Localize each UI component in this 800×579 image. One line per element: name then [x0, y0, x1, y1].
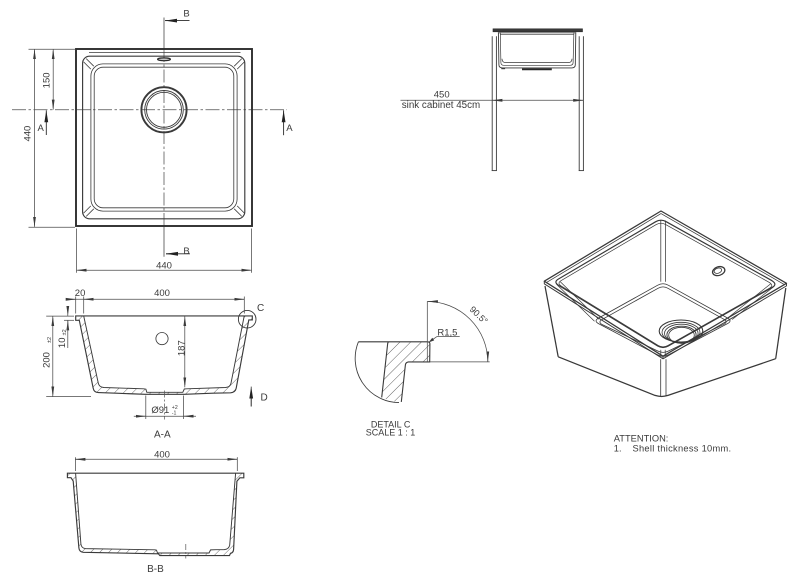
svg-text:10: 10	[57, 338, 68, 349]
svg-text:1.: 1.	[614, 444, 622, 454]
svg-text:B: B	[183, 9, 189, 20]
svg-text:200: 200	[41, 352, 52, 368]
svg-text:±2: ±2	[47, 337, 53, 343]
svg-text:A: A	[286, 123, 293, 134]
svg-text:D: D	[261, 392, 268, 403]
svg-text:R1,5: R1,5	[437, 327, 457, 338]
svg-text:440: 440	[156, 260, 172, 271]
svg-text:Shell thickness 10mm.: Shell thickness 10mm.	[633, 444, 732, 454]
svg-text:20: 20	[75, 288, 86, 299]
svg-text:Ø91: Ø91	[151, 405, 169, 416]
svg-text:400: 400	[154, 288, 170, 299]
svg-text:150: 150	[42, 72, 53, 88]
svg-text:440: 440	[23, 126, 34, 142]
svg-text:SCALE 1 : 1: SCALE 1 : 1	[366, 427, 416, 437]
svg-text:450: 450	[434, 89, 450, 100]
svg-text:400: 400	[154, 449, 170, 460]
svg-text:±2: ±2	[62, 329, 68, 335]
svg-text:C: C	[257, 303, 264, 314]
svg-text:B-B: B-B	[147, 564, 164, 575]
svg-text:sink cabinet 45cm: sink cabinet 45cm	[402, 100, 480, 111]
svg-text:ATTENTION:: ATTENTION:	[614, 434, 669, 444]
svg-text:A-A: A-A	[154, 429, 171, 440]
svg-text:A: A	[38, 123, 45, 134]
svg-text:187: 187	[176, 340, 187, 356]
svg-text:B: B	[183, 246, 189, 257]
svg-text:-1: -1	[172, 411, 177, 417]
